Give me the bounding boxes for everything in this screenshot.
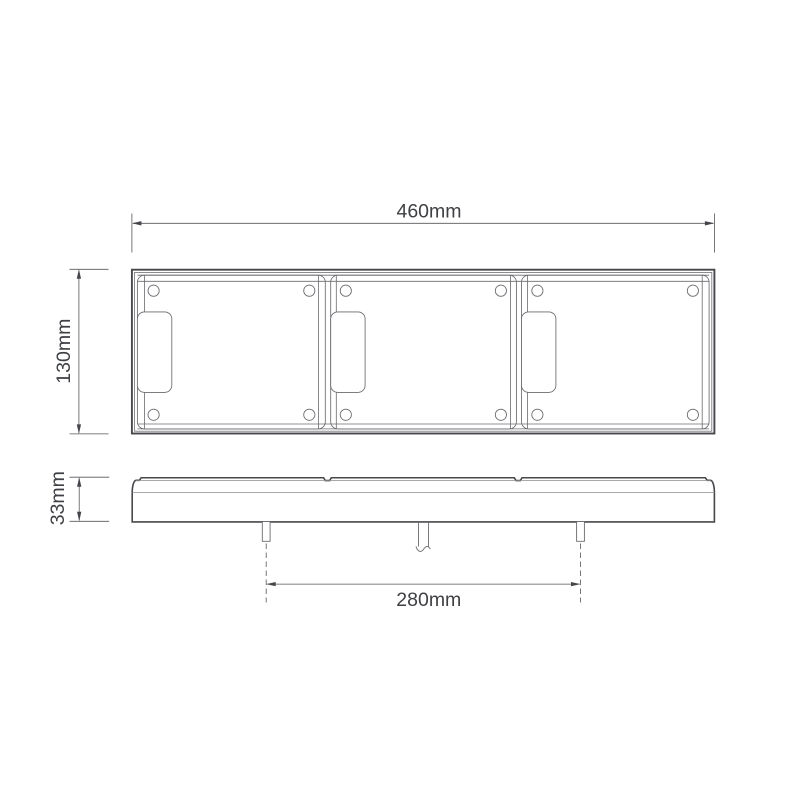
svg-text:280mm: 280mm [396,589,461,611]
svg-text:33mm: 33mm [47,471,69,525]
svg-text:460mm: 460mm [396,200,461,222]
svg-text:130mm: 130mm [53,319,75,384]
